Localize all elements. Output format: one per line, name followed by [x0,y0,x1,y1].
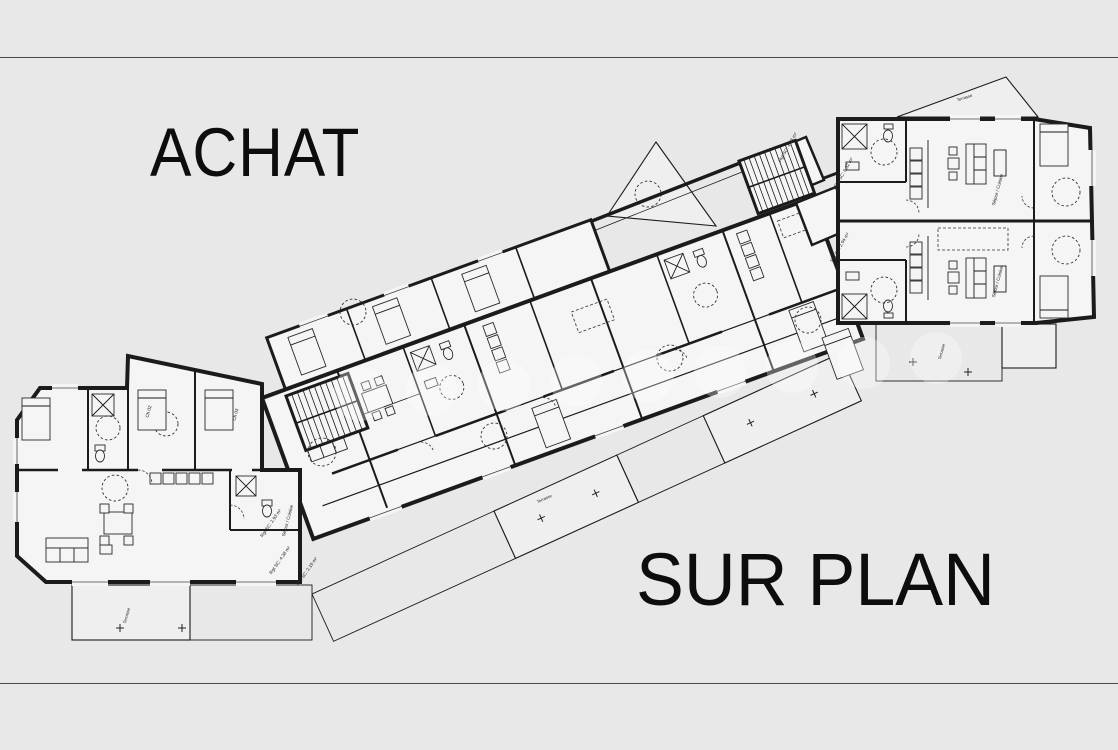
bed-icon [1040,276,1068,318]
bed-icon [1040,124,1068,166]
balcony-triangle-middle [607,142,716,226]
bed-icon [138,390,166,430]
terrace-right-block [876,324,1056,381]
bed-icon [22,398,50,440]
title-sur-plan: SUR PLAN [636,543,995,617]
listing-image: Rgt SC: 2.93 m² Rgt SC: 4.38 m² Rgt SC: … [0,0,1118,750]
floor-plan: Rgt SC: 2.93 m² Rgt SC: 4.38 m² Rgt SC: … [0,0,1118,750]
left-apartment [13,356,300,586]
right-apartment-block [838,115,1096,327]
terrace-bottom-left [72,585,190,640]
deck-strip-bottom-left [190,585,312,640]
bed-icon [205,390,233,430]
kitchen-counter-icon [150,473,213,484]
title-achat: ACHAT [150,118,360,187]
